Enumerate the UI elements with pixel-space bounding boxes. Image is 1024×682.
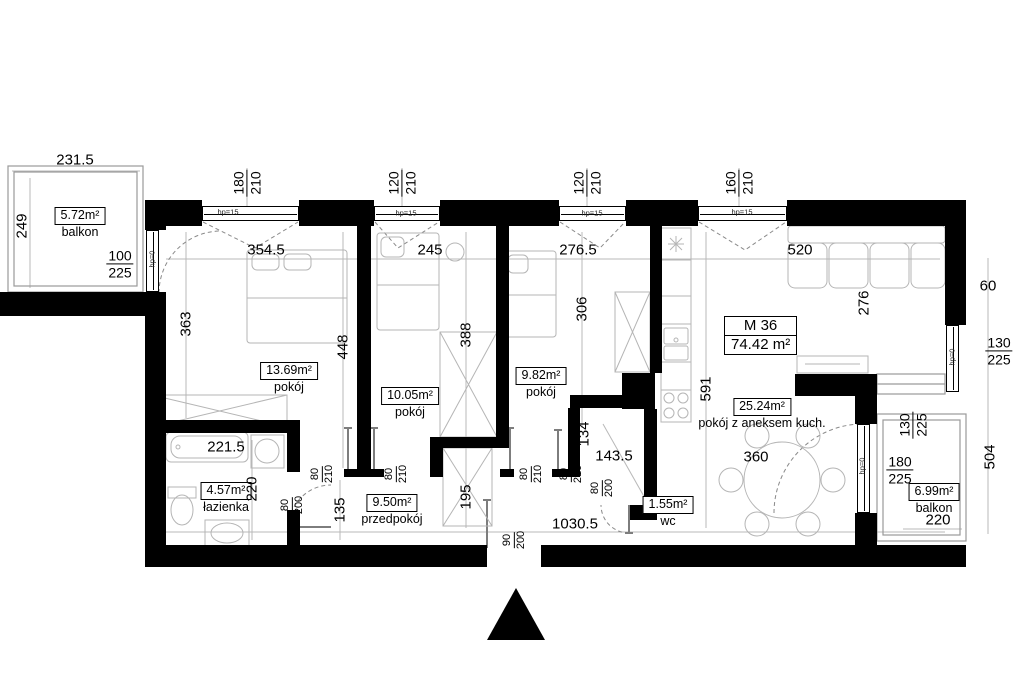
wall-right-corner-lower — [855, 513, 877, 545]
dim-right-height: 504 — [983, 444, 998, 469]
dim-balkon-br-width: 220 — [925, 513, 950, 528]
dim-mid-448: 448 — [336, 334, 351, 359]
dim-window2: 120210 — [385, 169, 418, 196]
hp-window-right: hp=0 — [948, 349, 956, 366]
dim-hall-135: 135 — [333, 497, 348, 522]
jamb-room3 — [500, 469, 514, 477]
wall-right-corner-upper — [855, 396, 877, 424]
dim-bath-width: 221.5 — [207, 440, 245, 455]
hp-window4: hp=15 — [731, 208, 752, 216]
wall-top-4 — [626, 200, 698, 226]
dim-window3: 120210 — [570, 169, 603, 196]
wall-div-room2-room3 — [496, 226, 509, 448]
name-przedpokoj: przedpokój — [361, 512, 422, 528]
area-living: 25.24m² — [733, 398, 791, 416]
room-label-pokoj1: 13.69m² pokój — [260, 361, 318, 395]
dim-living-height: 276 — [857, 290, 872, 315]
dim-room3-height: 306 — [575, 296, 590, 321]
dim-window4: 160210 — [722, 169, 755, 196]
wall-right-upper — [945, 200, 966, 325]
wall-div-room1-room2 — [357, 226, 371, 473]
wall-bottom-right — [541, 545, 966, 567]
area-pokoj1: 13.69m² — [260, 362, 318, 380]
dim-total-width: 1030.5 — [552, 517, 598, 532]
wall-div-room3-kitchen — [650, 226, 662, 373]
dim-room1-width: 354.5 — [247, 243, 285, 258]
wall-bath-right-lower — [287, 510, 300, 545]
unit-id: M 36 — [724, 316, 797, 336]
name-lazienka: łazienka — [201, 500, 252, 516]
hp-balcony-door-left: hp=0 — [148, 251, 156, 268]
room-label-wc: 1.55m² wc — [643, 495, 694, 529]
room-label-balkon-tl: 5.72m² balkon — [55, 206, 106, 240]
hp-balcony-door-right: hp=0 — [858, 458, 866, 475]
name-balkon-tl: balkon — [55, 225, 106, 241]
room-label-przedpokoj: 9.50m² przedpokój — [361, 493, 422, 527]
hp-window2: hp=15 — [395, 209, 416, 217]
dim-table: 360 — [743, 450, 768, 465]
dim-door-room3: 80210 — [518, 465, 544, 483]
dim-door-hall-living: 80210 — [558, 465, 584, 483]
dim-balkon-tl-width: 231.5 — [56, 153, 94, 168]
area-balkon-tl: 5.72m² — [55, 207, 106, 225]
dim-kitchen-height: 591 — [699, 376, 714, 401]
wall-bath-right-upper — [287, 420, 300, 472]
dim-door-room2: 80210 — [383, 465, 409, 483]
area-pokoj3: 9.82m² — [516, 367, 567, 385]
dim-door-entry: 90200 — [501, 531, 527, 549]
wall-top-2 — [299, 200, 374, 226]
hp-window3: hp=15 — [581, 209, 602, 217]
name-pokoj1: pokój — [260, 380, 318, 396]
dim-door-room1: 80210 — [309, 465, 335, 483]
wall-left-upper — [145, 200, 166, 230]
wall-bath-top — [166, 420, 300, 433]
room-label-pokoj2: 10.05m² pokój — [381, 386, 439, 420]
unit-title-box: M 36 74.42 m² — [724, 316, 797, 355]
entrance-arrow — [487, 588, 545, 640]
floor-plan: M 36 74.42 m² 5.72m² balkon 13.69m² pokó… — [0, 0, 1024, 682]
dim-wc-height: 134 — [577, 421, 592, 446]
wall-left-lower — [145, 292, 166, 567]
room-label-pokoj3: 9.82m² pokój — [516, 366, 567, 400]
wall-step-living — [795, 374, 877, 396]
wall-top-3 — [440, 200, 559, 226]
area-wc: 1.55m² — [643, 496, 694, 514]
wall-top-5 — [787, 200, 966, 226]
area-pokoj2: 10.05m² — [381, 387, 439, 405]
wall-bottom-left — [145, 545, 487, 567]
dim-hall-195: 195 — [459, 484, 474, 509]
dim-door-wc: 80200 — [589, 479, 615, 497]
dim-br-glazing: 130225 — [896, 411, 929, 438]
dim-room3-width: 276.5 — [559, 243, 597, 258]
dim-room1-height: 363 — [179, 311, 194, 336]
dim-wc-width: 143.5 — [595, 449, 633, 464]
area-przedpokoj: 9.50m² — [367, 494, 418, 512]
dim-right-offset: 60 — [980, 279, 997, 294]
wall-niche-left — [430, 437, 443, 477]
dim-living-width: 520 — [787, 243, 812, 258]
dim-bath-height: 220 — [245, 476, 260, 501]
wall-wc-top — [570, 395, 622, 408]
dim-door-bath: 80200 — [279, 496, 305, 514]
wall-balcony-tl-base — [0, 292, 148, 316]
jamb-room1-room2 — [344, 469, 384, 477]
hp-window1: hp=15 — [217, 208, 238, 216]
area-balkon-br: 6.99m² — [909, 483, 960, 501]
wall-wc-pillar — [622, 373, 655, 409]
dim-window1: 180210 — [230, 169, 263, 196]
dim-room2-width: 245 — [417, 243, 442, 258]
name-pokoj3: pokój — [516, 385, 567, 401]
name-living: pokój z aneksem kuch. — [698, 416, 825, 432]
dim-balkon-tl-height: 249 — [15, 213, 30, 238]
dim-window-right: 130225 — [985, 334, 1012, 367]
dim-balcony-door-left: 100225 — [106, 247, 133, 280]
name-wc: wc — [643, 514, 694, 530]
dim-balcony-door-right: 180225 — [886, 453, 913, 486]
dim-room2-height: 388 — [459, 322, 474, 347]
room-label-living: 25.24m² pokój z aneksem kuch. — [698, 397, 825, 431]
name-pokoj2: pokój — [381, 405, 439, 421]
unit-area: 74.42 m² — [724, 336, 797, 355]
